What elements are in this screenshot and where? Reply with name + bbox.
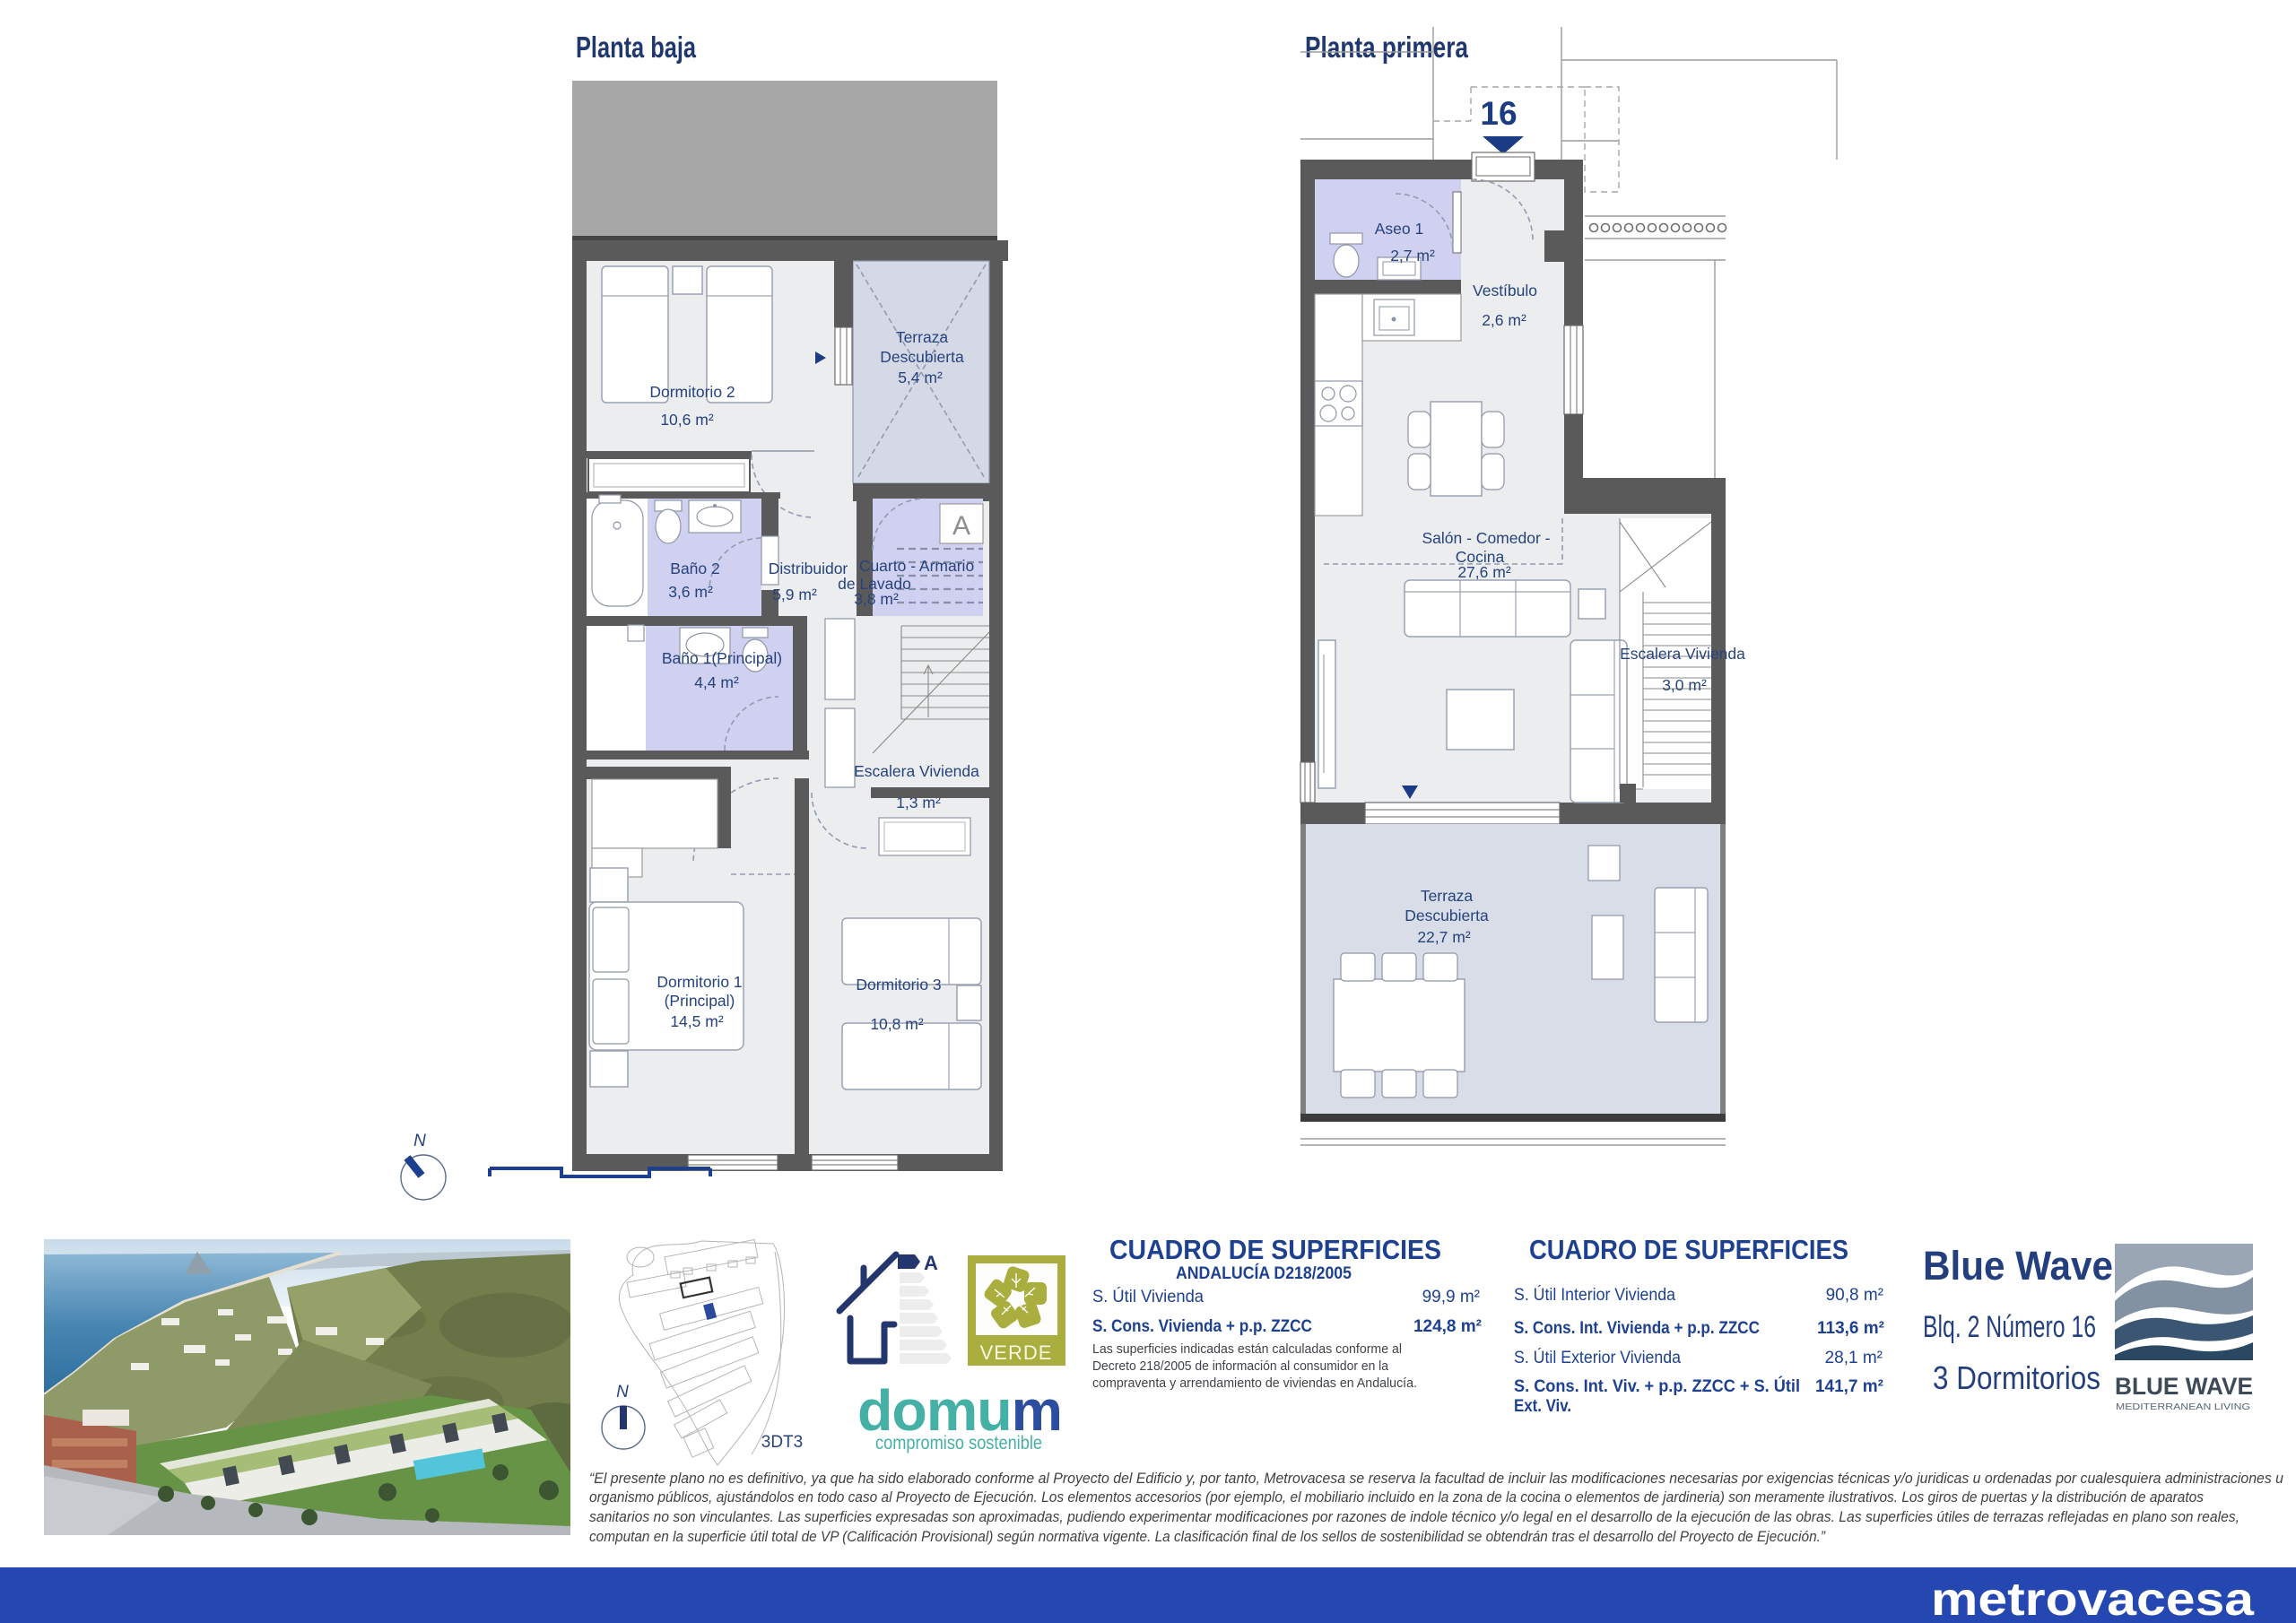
svg-text:Las superficies indicadas está: Las superficies indicadas están calculad… — [1092, 1341, 1402, 1357]
svg-text:10,8 m²: 10,8 m² — [870, 1015, 923, 1033]
svg-text:2,6 m²: 2,6 m² — [1482, 311, 1526, 329]
svg-text:A: A — [952, 511, 970, 541]
svg-text:VERDE: VERDE — [980, 1341, 1053, 1364]
svg-text:3 Dormitorios: 3 Dormitorios — [1933, 1359, 2100, 1396]
svg-text:3DT3: 3DT3 — [761, 1433, 803, 1452]
svg-text:10,6 m²: 10,6 m² — [660, 411, 713, 429]
svg-text:124,8 m²: 124,8 m² — [1413, 1317, 1482, 1336]
svg-text:16: 16 — [1480, 95, 1517, 132]
svg-text:Planta baja: Planta baja — [576, 30, 696, 64]
svg-text:Distribuidor: Distribuidor — [769, 560, 848, 577]
svg-text:Baño 2: Baño 2 — [670, 560, 719, 577]
svg-text:Salón - Comedor -: Salón - Comedor - — [1422, 529, 1551, 547]
svg-text:4,4 m²: 4,4 m² — [694, 673, 739, 691]
svg-text:S. Cons. Vivienda + p.p. ZZCC: S. Cons. Vivienda + p.p. ZZCC — [1092, 1317, 1312, 1336]
svg-text:CUADRO DE SUPERFICIES: CUADRO DE SUPERFICIES — [1109, 1234, 1441, 1265]
svg-text:MEDITERRANEAN LIVING: MEDITERRANEAN LIVING — [2116, 1402, 2250, 1412]
svg-text:28,1 m²: 28,1 m² — [1825, 1349, 1883, 1367]
svg-text:27,6 m²: 27,6 m² — [1457, 563, 1510, 581]
svg-text:S. Cons. Int. Viv. + p.p. ZZCC: S. Cons. Int. Viv. + p.p. ZZCC + S. Útil — [1514, 1376, 1800, 1396]
svg-text:99,9 m²: 99,9 m² — [1422, 1288, 1480, 1306]
svg-text:S. Útil Interior Vivienda: S. Útil Interior Vivienda — [1514, 1285, 1675, 1305]
svg-text:Escalera Vivienda: Escalera Vivienda — [854, 762, 979, 780]
svg-text:BLUE WAVE: BLUE WAVE — [2115, 1373, 2253, 1400]
svg-text:Vestíbulo: Vestíbulo — [1473, 282, 1537, 299]
svg-text:3,0 m²: 3,0 m² — [1662, 676, 1707, 694]
svg-text:Dormitorio 1: Dormitorio 1 — [657, 973, 742, 991]
svg-text:Terraza: Terraza — [1421, 887, 1474, 905]
svg-text:compraventa y arrendamiento de: compraventa y arrendamiento de viviendas… — [1092, 1376, 1417, 1391]
svg-text:Descubierta: Descubierta — [1405, 907, 1489, 924]
svg-text:Ext. Viv.: Ext. Viv. — [1514, 1397, 1571, 1416]
svg-text:“El presente plano no es defin: “El presente plano no es definitivo, ya … — [589, 1470, 2284, 1487]
svg-text:3,6 m²: 3,6 m² — [668, 583, 713, 601]
svg-text:Aseo 1: Aseo 1 — [1375, 220, 1423, 238]
svg-text:N: N — [616, 1383, 629, 1402]
svg-text:Dormitorio 2: Dormitorio 2 — [649, 383, 735, 401]
svg-text:3,8 m²: 3,8 m² — [854, 590, 899, 608]
svg-text:5,9 m²: 5,9 m² — [772, 586, 817, 603]
svg-text:organismo públicos, ajustándol: organismo públicos, ajustándolos en todo… — [589, 1488, 2204, 1506]
svg-text:N: N — [413, 1132, 426, 1150]
svg-text:2,7 m²: 2,7 m² — [1390, 247, 1435, 265]
svg-text:ANDALUCÍA D218/2005: ANDALUCÍA D218/2005 — [1176, 1263, 1352, 1283]
svg-text:S. Útil Exterior Vivienda: S. Útil Exterior Vivienda — [1514, 1348, 1681, 1367]
svg-text:Escalera Vivienda: Escalera Vivienda — [1620, 645, 1745, 663]
svg-text:Baño 1(Principal): Baño 1(Principal) — [662, 649, 782, 667]
svg-text:computan en la superficie útil: computan en la superficie útil total de … — [589, 1528, 1826, 1545]
svg-text:metrovacesa: metrovacesa — [1931, 1574, 2255, 1623]
svg-text:S. Cons. Int. Vivienda + p.p.: S. Cons. Int. Vivienda + p.p. ZZCC — [1514, 1319, 1760, 1338]
svg-text:Blue Wave: Blue Wave — [1923, 1243, 2113, 1289]
svg-text:Terraza: Terraza — [896, 328, 949, 346]
svg-text:Cuarto - Armario: Cuarto - Armario — [859, 557, 974, 575]
svg-text:Blq. 2 Número 16: Blq. 2 Número 16 — [1923, 1310, 2096, 1344]
svg-text:14,5 m²: 14,5 m² — [670, 1012, 723, 1030]
svg-text:141,7 m²: 141,7 m² — [1815, 1377, 1883, 1396]
svg-text:sanitarios no son vinculantes.: sanitarios no son vinculantes. Las super… — [589, 1508, 2239, 1525]
svg-text:compromiso sostenible: compromiso sostenible — [875, 1433, 1042, 1454]
svg-text:Descubierta: Descubierta — [880, 348, 964, 366]
svg-text:22,7 m²: 22,7 m² — [1417, 928, 1470, 946]
svg-text:S. Útil Vivienda: S. Útil Vivienda — [1092, 1287, 1204, 1306]
svg-text:90,8 m²: 90,8 m² — [1826, 1286, 1883, 1305]
svg-text:Decreto 218/2005 de informació: Decreto 218/2005 de información al consu… — [1092, 1358, 1389, 1374]
svg-text:Dormitorio 3: Dormitorio 3 — [856, 976, 941, 994]
svg-text:Planta primera: Planta primera — [1305, 30, 1469, 64]
svg-text:(Principal): (Principal) — [665, 992, 735, 1010]
svg-text:CUADRO DE SUPERFICIES: CUADRO DE SUPERFICIES — [1529, 1234, 1848, 1265]
svg-text:5,4 m²: 5,4 m² — [898, 369, 943, 386]
svg-text:A: A — [924, 1252, 938, 1274]
svg-text:113,6 m²: 113,6 m² — [1817, 1319, 1884, 1338]
